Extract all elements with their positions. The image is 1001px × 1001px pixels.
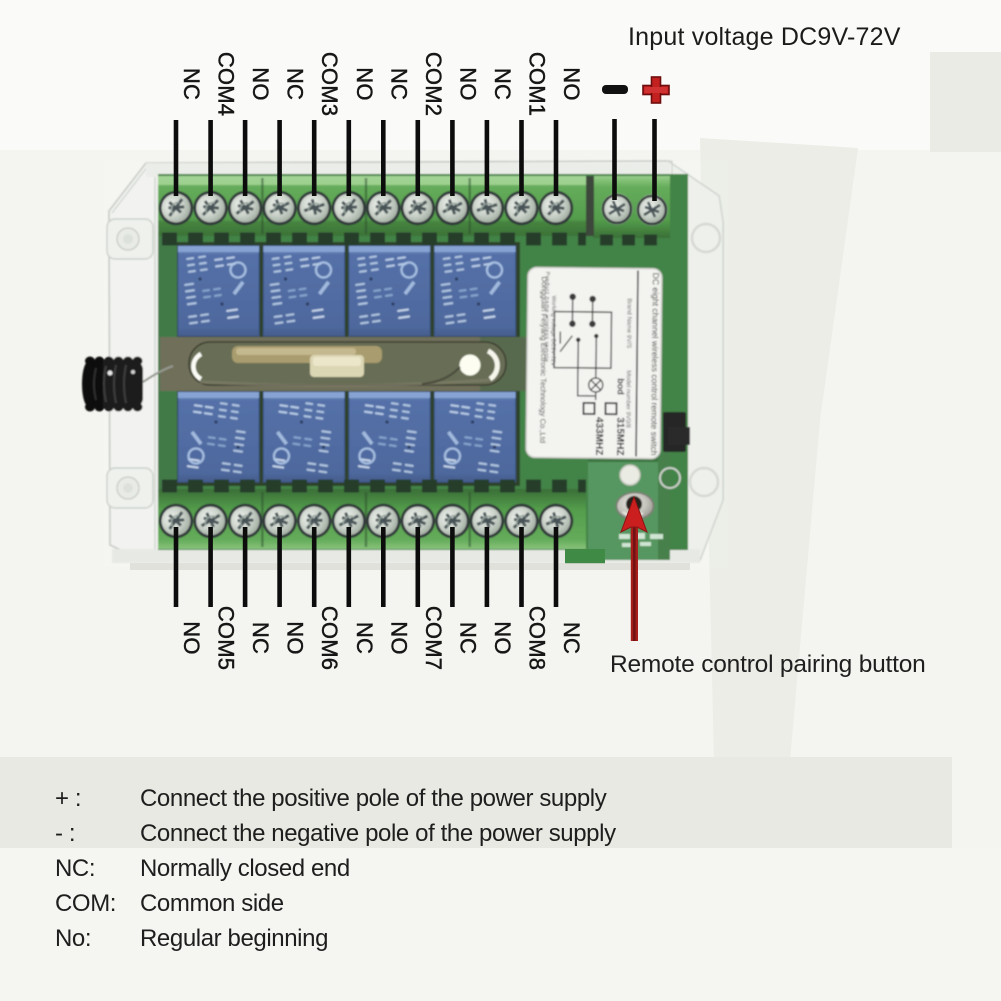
svg-text:- :: - : [55,820,75,847]
svg-text:NC: NC [455,622,480,654]
svg-text:NO: NO [559,67,584,100]
svg-text:No:: No: [55,925,91,952]
svg-text:Input voltage DC9V-72V: Input voltage DC9V-72V [628,23,901,51]
svg-text:COM:: COM: [55,890,116,917]
svg-text:NC: NC [490,68,515,100]
svg-text:COM1: COM1 [525,52,550,116]
svg-text:NC: NC [559,622,584,654]
svg-text:Normally closed end: Normally closed end [140,855,350,882]
svg-text:NC: NC [283,68,308,100]
svg-text:COM2: COM2 [421,52,446,116]
svg-text:NO: NO [248,67,273,100]
svg-text:COM5: COM5 [214,606,239,670]
svg-text:NO: NO [386,621,411,654]
svg-text:NC: NC [179,68,204,100]
svg-text:Connect the negative pole of t: Connect the negative pole of the power s… [140,820,616,847]
svg-text:NO: NO [179,621,204,654]
svg-text:COM6: COM6 [317,606,342,670]
svg-text:NO: NO [455,67,480,100]
svg-text:COM7: COM7 [421,606,446,670]
svg-text:+ :: + : [55,785,81,812]
svg-text:COM8: COM8 [525,606,550,670]
svg-text:NO: NO [352,67,377,100]
svg-text:Remote control pairing button: Remote control pairing button [610,651,926,678]
svg-text:COM3: COM3 [317,52,342,116]
svg-text:COM4: COM4 [214,52,239,116]
svg-text:NC: NC [386,68,411,100]
svg-text:Common side: Common side [140,890,284,917]
svg-text:NC:: NC: [55,855,95,882]
svg-text:NC: NC [248,622,273,654]
svg-text:NO: NO [490,621,515,654]
svg-text:NO: NO [283,621,308,654]
svg-text:Connect the positive pole of t: Connect the positive pole of the power s… [140,785,607,812]
svg-text:NC: NC [352,622,377,654]
svg-text:Regular beginning: Regular beginning [140,925,328,952]
